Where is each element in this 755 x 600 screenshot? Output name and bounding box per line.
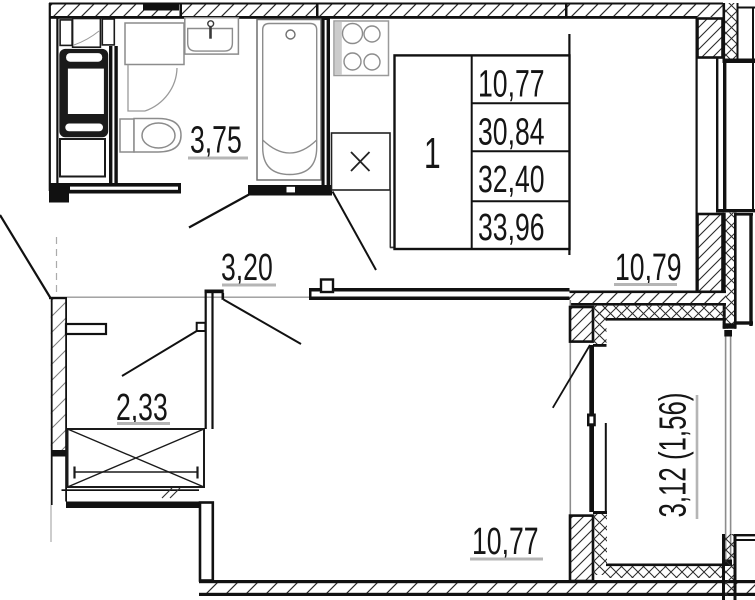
svg-text:3,12 (1,56): 3,12 (1,56) (652, 393, 694, 518)
svg-text:10,79: 10,79 (615, 245, 682, 288)
svg-text:10,77: 10,77 (472, 519, 539, 562)
svg-text:33,96: 33,96 (478, 205, 545, 248)
svg-text:30,84: 30,84 (478, 110, 545, 153)
svg-text:10,77: 10,77 (478, 62, 545, 105)
svg-text:3,20: 3,20 (221, 245, 273, 288)
svg-text:3,75: 3,75 (190, 118, 242, 161)
svg-text:1: 1 (424, 128, 441, 177)
svg-text:32,40: 32,40 (478, 157, 545, 200)
svg-text:2,33: 2,33 (116, 385, 168, 428)
